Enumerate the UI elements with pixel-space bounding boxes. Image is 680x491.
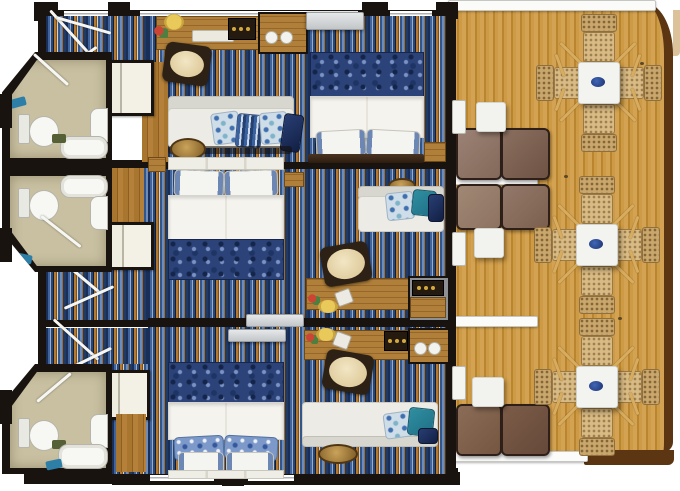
- bed-sheet: [168, 402, 284, 440]
- chair-cushion: [327, 354, 370, 390]
- floor-plan: [0, 0, 680, 491]
- sofa: [300, 400, 438, 448]
- wood-floor-strip: [116, 414, 146, 472]
- safe-tray: [384, 331, 408, 351]
- gold-items: [388, 339, 392, 343]
- coffee-table: [318, 444, 358, 464]
- sink: [90, 414, 108, 448]
- headboard: [168, 470, 284, 479]
- tea-cup: [414, 342, 427, 355]
- cabin-3: [0, 0, 680, 491]
- wall-tv: [228, 329, 286, 342]
- duvet: [168, 362, 284, 404]
- bathroom-3: [2, 364, 112, 474]
- towel: [45, 458, 63, 470]
- plumbing-chase: [0, 390, 12, 424]
- minibar-cabinet: [408, 328, 450, 364]
- entry-hall-carpet: [46, 328, 148, 368]
- desk-chair: [321, 348, 375, 396]
- bathtub: [58, 444, 108, 469]
- double-bed: [166, 360, 284, 478]
- throw-pillow: [418, 428, 438, 444]
- tea-cup: [428, 342, 441, 355]
